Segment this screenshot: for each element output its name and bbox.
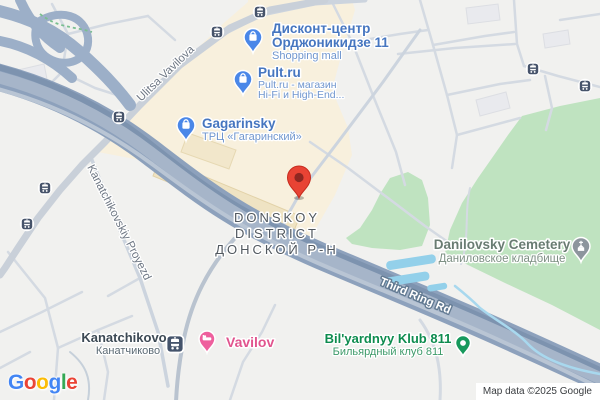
- transit-stop-icon[interactable]: [112, 110, 126, 124]
- svg-text:Дисконт-центр: Дисконт-центр: [272, 21, 370, 36]
- svg-text:DISTRICT: DISTRICT: [235, 226, 319, 241]
- svg-text:Орджоникидзе 11: Орджоникидзе 11: [272, 35, 389, 50]
- map-viewport: Ulitsa Vavilova Kanatchikovskiy Proyezd …: [0, 0, 600, 400]
- svg-text:DONSKOY: DONSKOY: [234, 210, 320, 225]
- svg-text:Канатчиково: Канатчиково: [96, 345, 160, 357]
- logo-letter: g: [49, 371, 61, 395]
- transit-stop-icon[interactable]: [526, 62, 540, 76]
- transit-stop-icon[interactable]: [38, 181, 52, 195]
- transit-stop-icon[interactable]: [253, 5, 267, 19]
- logo-letter: o: [36, 371, 48, 395]
- transit-stop-icon[interactable]: [210, 25, 224, 39]
- google-logo[interactable]: Google: [8, 371, 77, 395]
- svg-text:Kanatchikovo: Kanatchikovo: [81, 330, 166, 345]
- svg-text:ТРЦ «Гагаринский»: ТРЦ «Гагаринский»: [202, 131, 302, 143]
- svg-text:Bil'yardnyy Klub 811: Bil'yardnyy Klub 811: [325, 331, 452, 346]
- transit-stop-icon[interactable]: [578, 79, 592, 93]
- transit-stop-icon[interactable]: [20, 217, 34, 231]
- train-station-icon[interactable]: [167, 336, 184, 353]
- svg-text:Бильярдный клуб 811: Бильярдный клуб 811: [333, 346, 444, 358]
- logo-letter: G: [8, 371, 24, 395]
- svg-text:Vavilov: Vavilov: [226, 334, 274, 350]
- svg-text:Даниловское кладбище: Даниловское кладбище: [439, 253, 566, 265]
- map-attribution: Map data ©2025 Google: [476, 383, 600, 400]
- svg-text:Gagarinsky: Gagarinsky: [202, 116, 276, 131]
- logo-letter: e: [66, 371, 77, 395]
- svg-text:Hi-Fi и High-End...: Hi-Fi и High-End...: [258, 89, 344, 101]
- svg-text:Danilovsky Cemetery: Danilovsky Cemetery: [434, 237, 571, 252]
- svg-text:Shopping mall: Shopping mall: [272, 50, 342, 62]
- svg-text:Pult.ru: Pult.ru: [258, 65, 301, 80]
- map-canvas-svg: Ulitsa Vavilova Kanatchikovskiy Proyezd …: [0, 0, 600, 400]
- svg-text:ДОНСКОЙ Р-Н: ДОНСКОЙ Р-Н: [215, 242, 339, 257]
- logo-letter: o: [24, 371, 36, 395]
